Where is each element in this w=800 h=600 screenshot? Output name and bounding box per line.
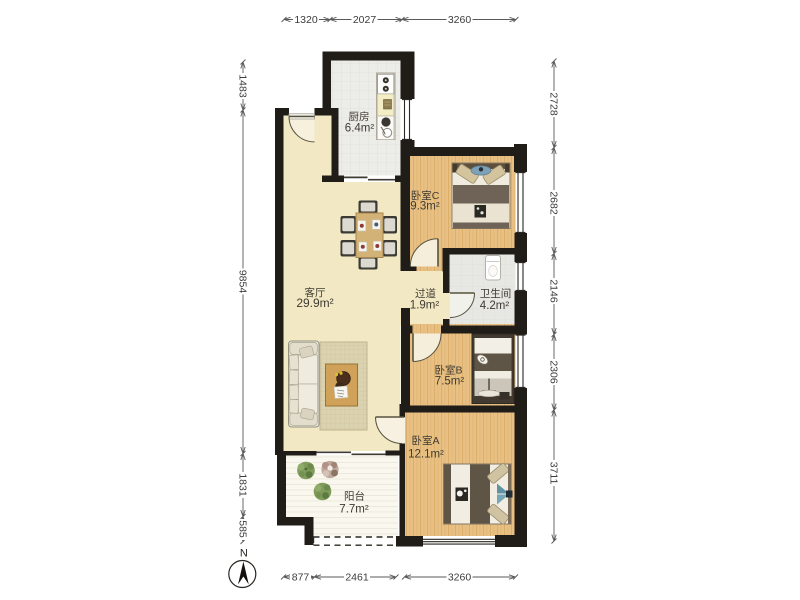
svg-text:585: 585 [237, 520, 249, 538]
svg-text:2461: 2461 [345, 572, 369, 584]
svg-text:3260: 3260 [448, 572, 472, 584]
svg-text:阳台: 阳台 [344, 490, 365, 503]
svg-text:1831: 1831 [237, 473, 249, 497]
svg-text:3711: 3711 [548, 462, 560, 485]
svg-text:2682: 2682 [548, 191, 560, 215]
svg-text:9854: 9854 [237, 270, 249, 294]
svg-text:卫生间: 卫生间 [480, 287, 512, 300]
svg-text:9.3m²: 9.3m² [410, 201, 440, 213]
svg-text:过道: 过道 [415, 287, 436, 300]
svg-text:2027: 2027 [353, 14, 377, 26]
svg-text:4.2m²: 4.2m² [480, 300, 510, 312]
svg-text:6.4m²: 6.4m² [345, 123, 375, 135]
svg-text:N: N [240, 548, 248, 560]
svg-text:卧室A: 卧室A [411, 434, 439, 447]
svg-text:7.5m²: 7.5m² [435, 376, 465, 388]
svg-text:2306: 2306 [548, 360, 560, 384]
svg-text:2728: 2728 [548, 92, 560, 116]
svg-text:3260: 3260 [448, 14, 472, 26]
svg-text:1320: 1320 [294, 14, 318, 26]
svg-text:7.7m²: 7.7m² [339, 504, 369, 516]
svg-text:877: 877 [292, 572, 310, 584]
svg-text:厨房: 厨房 [349, 110, 370, 123]
svg-text:1483: 1483 [237, 74, 249, 98]
svg-text:12.1m²: 12.1m² [408, 449, 444, 461]
svg-text:29.9m²: 29.9m² [296, 296, 333, 310]
svg-text:1.9m²: 1.9m² [410, 300, 440, 312]
svg-text:2146: 2146 [548, 279, 560, 303]
